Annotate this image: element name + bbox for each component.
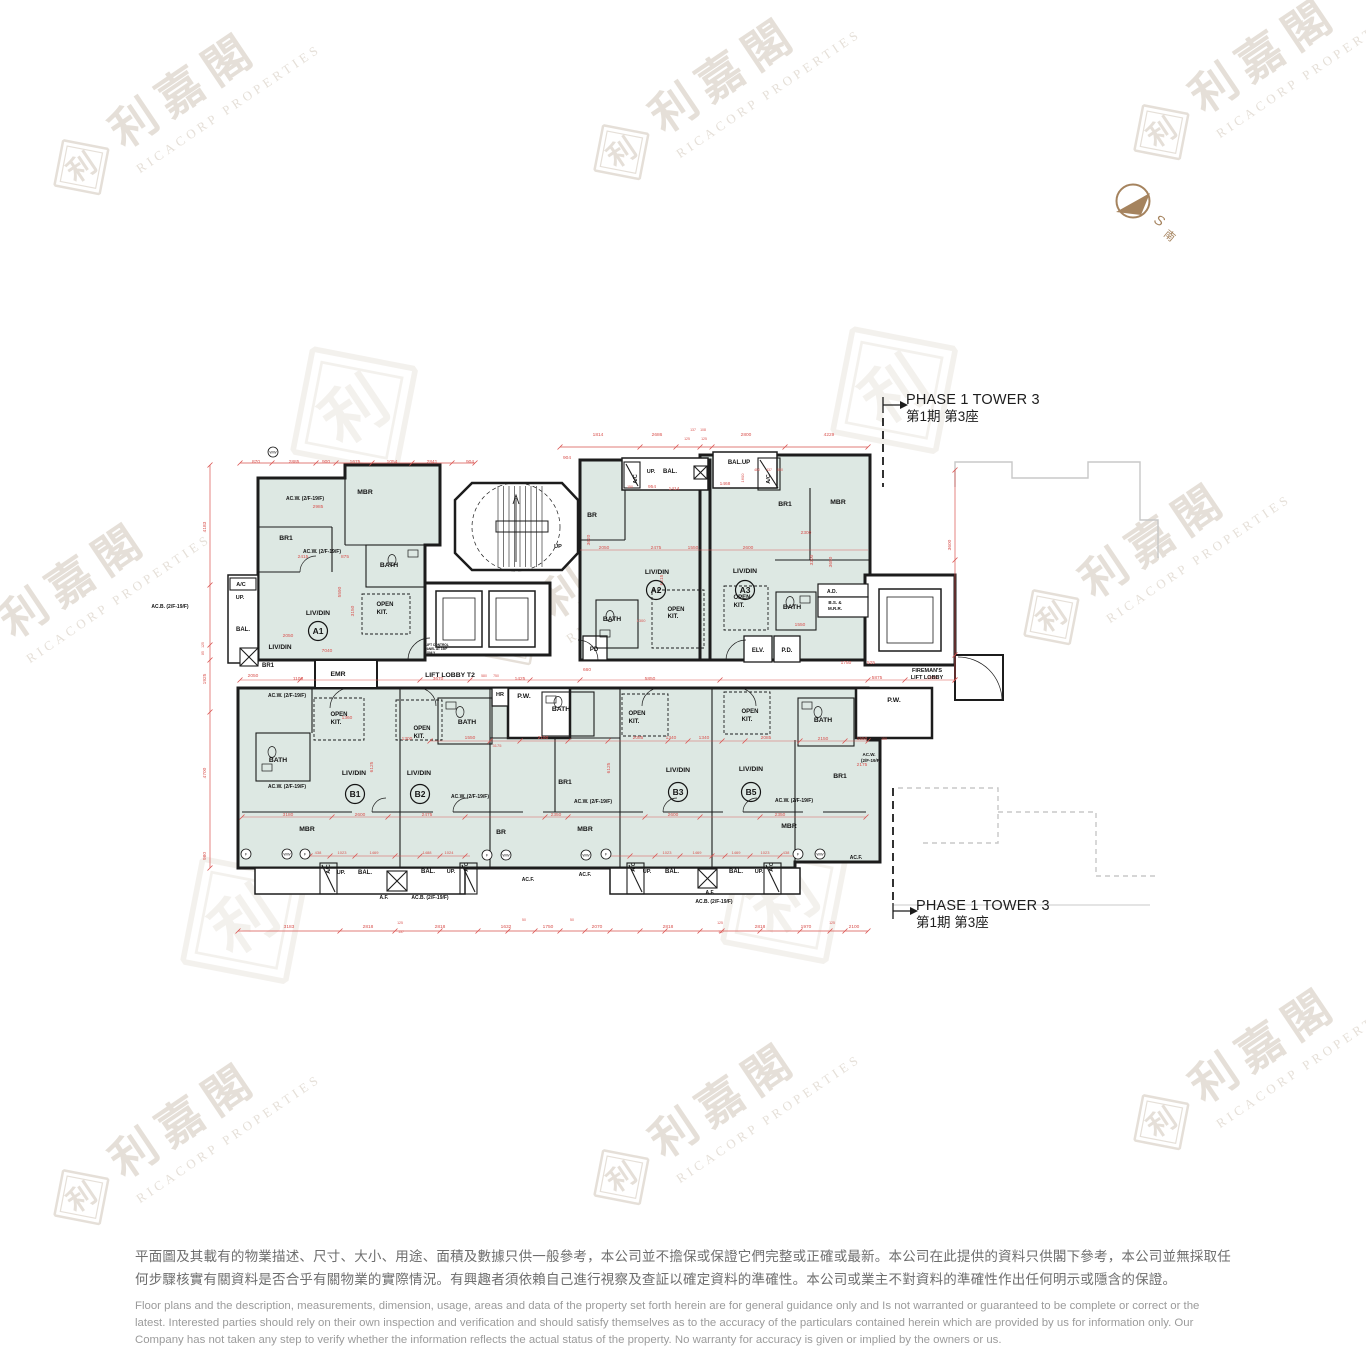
room-label: A/C [633,474,639,484]
room-label: BR1 [279,535,293,542]
unit-badge: B3 [673,787,684,797]
room-label: KIT. [331,720,342,726]
axis-marker: WW [283,853,291,857]
room-label: OPEN [330,712,347,718]
dimension-label: 2050 [283,633,294,639]
room-label: FIREMAN'S [912,668,942,674]
dimension-label: 2600 [668,812,679,818]
unit-badge: A2 [651,585,662,595]
dimension-label: 1675 [350,459,361,465]
dimension-label: 3200 [809,554,815,565]
room-label: EMR [330,671,345,678]
dimension-label: 1550 [857,736,868,742]
dimension-label: 2150 [818,736,829,742]
room-label: MBR [577,826,593,833]
dimension-label: 954 [648,484,656,490]
dimension-label: 1469 [732,850,742,855]
axis-marker: WW [269,451,277,455]
dimension-label: 125 [701,437,707,441]
dimension-label: 1970 [801,924,812,930]
room-label: KIT. [377,610,388,616]
tower-label-top: PHASE 1 TOWER 3 第1期 第3座 [906,392,1040,425]
dimension-label: 2818 [755,924,766,930]
disclaimer-en-line1: Floor plans and the description, measure… [135,1298,1240,1315]
dimension-label: 1550 [795,622,806,628]
room-label: P.D. [782,648,793,654]
room-label: AC.F. [850,855,863,861]
dimension-label: 660 [583,667,591,673]
dimension-label: 1550 [465,735,476,741]
disclaimer-zh-line2: 何步驟核實有關資料是否合乎有關物業的實際情況。有興趣者須依賴自己進行視察及查証以… [135,1269,1240,1292]
room-label: LIV/DIN [342,770,366,777]
room-label: P.W. [517,693,531,700]
dimension-label: 437 [766,468,772,472]
dimension-label: 875 [341,554,349,560]
room-label: BAL. [358,870,372,876]
dimension-label: 525 [867,660,875,666]
room-label: B.S. & [828,600,842,605]
unit-badge: B2 [415,789,426,799]
dimension-label: 480 [754,468,760,472]
room-label: BAL. [729,869,743,875]
dimension-label: 438 [783,850,790,855]
dimension-label: 1340 [699,735,710,741]
dimension-label: 1925 [202,673,208,684]
room-label: UP. [447,869,456,875]
room-label: BATH [814,717,832,724]
dimension-label: 125 [684,437,690,441]
dimension-label: 2818 [663,924,674,930]
dimension-label: 108 [700,428,706,432]
room-label: LIV/DIN [306,610,330,617]
room-label: ONLY [427,651,436,655]
room-label: BATH [269,757,287,764]
room-label: (2/F-19/F) [861,758,882,763]
room-label: UP. [755,869,764,875]
compass-s-label: S [1151,211,1168,230]
room-label: KIT. [414,734,425,740]
dimension-label: 85 [201,651,205,655]
dimension-label: 2600 [355,812,366,818]
room-label: P.W. [887,697,901,704]
room-label: A/C [631,862,637,872]
room-label: UP [554,544,562,550]
room-label: LIV/DIN [666,767,690,774]
dimension-label: 1054 [387,459,398,465]
dimension-label: 125 [201,642,205,648]
disclaimer-zh: 平面圖及其載有的物業描述、尺寸、大小、用途、面積及數據只供一般參考，本公司並不擔… [135,1246,1240,1291]
dimension-label: 2800 [741,432,752,438]
dimension-label: 137 [398,930,404,934]
dimension-label: 4229 [824,432,835,438]
floor-plan-svg: S 南 181426862800422913712510812590487028… [0,0,1366,1366]
dimension-label: 7040 [322,648,333,654]
room-label: AC.W. (2/F-19/F) [268,693,306,699]
dimension-label: 1600 [740,473,745,483]
compass-south-label: 南 [1161,227,1178,244]
room-label: A/C [236,582,246,588]
dimension-label: 5875 [872,675,883,681]
room-label: BAL.UP [728,460,750,466]
dimension-label: 150 [881,737,887,741]
dimension-label: 2600 [743,545,754,551]
dimension-label: 2818 [363,924,374,930]
tower-label-bottom: PHASE 1 TOWER 3 第1期 第3座 [916,898,1050,931]
dimension-label: 150 [627,485,633,489]
room-label: A.D. [827,589,838,595]
tower-label-top-en: PHASE 1 TOWER 3 [906,392,1040,408]
dimension-label: 1750 [841,660,852,666]
dimension-label: 2100 [849,924,860,930]
room-label: KIT. [734,603,745,609]
dimension-label: 1469 [370,850,380,855]
room-label: UP. [236,595,245,601]
room-label: MBR [357,489,373,496]
room-label: LIFT LOBBY [911,675,944,681]
room-label: BAL. [236,627,250,633]
disclaimer-en: Floor plans and the description, measure… [135,1298,1240,1348]
room-label: OPEN [667,607,684,613]
room-label: KIT. [668,614,679,620]
tower-label-top-zh: 第1期 第3座 [906,408,1040,425]
axis-marker: WW [502,854,510,858]
room-label: BR [587,512,597,519]
dimension-label: 2475 [651,545,662,551]
dimension-label: 3183 [284,924,295,930]
dimension-label: 904 [563,455,571,461]
unit-badge: B1 [350,789,361,799]
dimension-label: 3150 [350,605,356,616]
dimension-label: 2050 [599,545,610,551]
dimension-label: 137 [718,930,724,934]
room-label: A/C [326,864,332,874]
room-label: A/C [766,474,772,484]
room-label: OPEN [741,709,758,715]
room-label: A/C [464,862,470,872]
dimension-label: 750 [493,674,499,678]
dimension-label: 2070 [592,924,603,930]
room-label: UP. [337,870,346,876]
room-label: BAL. [421,869,435,875]
dimension-label: 2475 [422,812,433,818]
dimension-label: 2841 [427,459,438,465]
dimension-label: 2350 [551,812,562,818]
room-label: BAL. [665,869,679,875]
dimension-label: 4183 [202,521,208,532]
room-label: BR1 [778,501,792,508]
room-label: OPEN [376,602,393,608]
dimension-label: 125 [829,921,835,925]
dimension-label: 900 [322,459,330,465]
dimension-label: 2085 [761,735,772,741]
dimension-label: 5590 [337,586,343,597]
room-label: AC.W. (2/F-19/F) [451,794,489,800]
room-label: AC.W. (2/F-19/F) [268,784,306,790]
dimension-label: 1300 [402,736,413,742]
dimension-label: 1469 [693,850,703,855]
dimension-label: 980 [202,852,208,860]
room-label: LIV/DIN [739,766,763,773]
room-label: ELV. [752,648,765,654]
room-label: AC.B. (2/F-19/F) [151,604,189,610]
dimension-label: 5850 [645,676,656,682]
dimension-label: 4700 [202,767,208,778]
room-label: LIV/DIN [645,569,669,576]
dimension-label: 580 [481,674,487,678]
room-label: BR1 [262,663,275,669]
unit-badge: B5 [746,787,757,797]
room-label: BR1 [558,779,572,786]
dimension-label: 1750 [543,924,554,930]
dimension-label: 2300 [801,530,812,536]
dimension-label: 2985 [313,504,324,510]
room-label: MBR [830,499,846,506]
dimension-label: 1632 [501,924,512,930]
dimension-label: 1024 [445,850,455,855]
room-label: AC.F. [522,877,535,883]
disclaimer: 平面圖及其載有的物業描述、尺寸、大小、用途、面積及數據只供一般參考，本公司並不擔… [135,1246,1240,1348]
room-label: LIV/DIN [407,770,431,777]
room-label: BAL. [663,469,677,475]
room-label: LIFT LOBBY T2 [425,672,475,679]
dimension-label: 3175 [493,743,503,748]
room-label: UP. [647,469,656,475]
floor-plan-page: 利利嘉閣RICACORP PROPERTIES利利嘉閣RICACORP PROP… [0,0,1366,1366]
dimension-label: 6125 [606,762,612,773]
dimension-label: 3620 [586,534,592,545]
dimension-label: 3180 [283,812,294,818]
room-label: BATH [603,616,621,623]
dimension-label: 1468 [720,481,731,487]
tower-label-bottom-en: PHASE 1 TOWER 3 [916,898,1050,914]
emr-room [315,660,377,688]
dimension-label: 2350 [775,812,786,818]
room-label: OPEN [628,711,645,717]
dimension-label: 1100 [293,676,304,682]
dimension-label: 2818 [435,924,446,930]
room-label: AC.B. (2/F-19/F) [695,899,733,905]
room-label: BR [496,829,506,836]
dimension-label: 1488 [423,850,433,855]
axis-marker: WW [816,853,824,857]
dimension-label: 1023 [761,850,771,855]
room-label: A.F. [706,890,716,896]
room-label: KIT. [742,717,753,723]
compass-icon: S 南 [1116,185,1178,245]
disclaimer-en-line3: Company has not taken any step to verify… [135,1332,1240,1349]
room-label: PD [590,647,599,653]
dimension-label: 1814 [593,432,604,438]
dimension-label: 2150 [538,735,549,741]
pw-room-right [856,688,932,738]
dimension-label: 50 [522,918,526,922]
dimension-label: 1550 [688,545,699,551]
room-label: A/C [769,862,775,872]
room-label: BATH [458,719,476,726]
unit-badge: A3 [740,585,751,595]
dimension-label: 550 [777,468,783,472]
dimension-label: 3600 [947,539,953,550]
dimension-label: 1340 [666,735,677,741]
dimension-label: 2050 [248,673,259,679]
unit-badge: A1 [313,626,324,636]
room-label: AC.W. (2/F-19/F) [775,798,813,804]
dimension-label: 870 [252,459,260,465]
room-label: OPEN [733,595,750,601]
room-label: AC.B. (2/F-19/F) [411,895,449,901]
room-label: MBR [299,826,315,833]
room-label: M.R.R. [828,606,842,611]
axis-marker: WW [582,854,590,858]
room-label: AC.W. (2/F-19/F) [574,799,612,805]
dimension-label: 1023 [338,850,348,855]
room-label: HR [496,692,504,698]
room-label: OPEN [413,726,430,732]
dimension-label: 1425 [515,676,526,682]
dimension-label: 1414 [669,486,680,492]
dimension-label: 125 [397,921,403,925]
room-label: BATH [380,562,398,569]
dimension-label: 2085 [633,735,644,741]
room-label: UP. [643,869,652,875]
room-label: BATH [552,706,570,713]
room-label: AC.F. [579,872,592,878]
dimension-label: 137 [690,428,696,432]
neighbour-outline [893,462,1158,905]
room-label: BATH [783,604,801,611]
room-label: AC.W. (2/F-19/F) [303,549,341,555]
dimension-label: 2885 [289,459,300,465]
dimension-label: 6125 [369,761,375,772]
room-label: AC.W. (2/F-19/F) [286,496,324,502]
room-label: KIT. [629,719,640,725]
room-label: A.F. [380,895,390,901]
room-label: LIV/DIN [268,644,291,651]
dimension-label: 2686 [652,432,663,438]
room-label: AC.W. [863,752,876,757]
dimension-label: 438 [315,850,322,855]
room-label: BR1 [833,773,847,780]
dimension-label: 1023 [663,850,673,855]
dimension-label: 125 [717,921,723,925]
dimension-label: 1300 [637,618,647,623]
room-label: MBR [781,823,797,830]
disclaimer-zh-line1: 平面圖及其載有的物業描述、尺寸、大小、用途、面積及數據只供一般參考，本公司並不擔… [135,1246,1240,1269]
dimension-label: 3650 [828,556,834,567]
room-label: LIV/DIN [733,568,757,575]
dimension-label: 50 [570,918,574,922]
tower-label-bottom-zh: 第1期 第3座 [916,914,1050,931]
disclaimer-en-line2: latest. Interested parties should rely o… [135,1315,1240,1332]
dimension-label: 904 [466,459,474,465]
